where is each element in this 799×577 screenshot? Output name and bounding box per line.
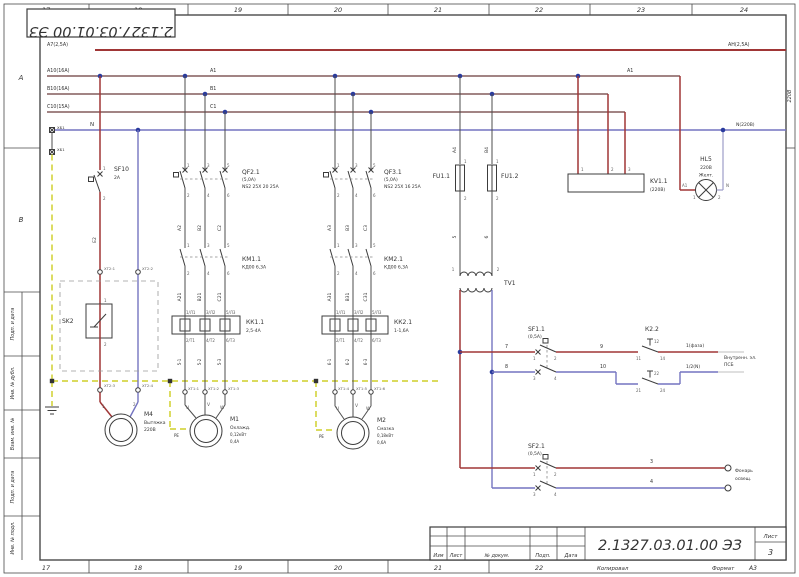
wire-tag: С2 bbox=[217, 225, 223, 231]
pin-label: 2 bbox=[554, 356, 557, 361]
lamp-hl5-ref: HL5 bbox=[700, 156, 712, 163]
pin-label: 3 bbox=[355, 243, 358, 248]
zone-number: 20 bbox=[334, 564, 342, 572]
cable-tag: 5-2 bbox=[197, 358, 202, 365]
breaker-qf21: 1 3 5 2 4 6 QF2.1 (5,0А) NS2 25Х 20 25А bbox=[174, 163, 280, 198]
breaker-qf31-type: NS2 25Х 16 25А bbox=[384, 184, 422, 190]
breaker-qf21-type: NS2 25Х 20 25А bbox=[242, 184, 280, 190]
pin-label: 5 bbox=[373, 163, 376, 168]
breaker-sf10: 1 2 SF10 2А bbox=[89, 166, 130, 201]
terminal-label: ХТ1:1 bbox=[188, 386, 200, 391]
pin-label: 14 bbox=[660, 356, 666, 361]
pin-label: 2/Т1 bbox=[186, 338, 195, 343]
zone-number: 22 bbox=[535, 6, 543, 14]
sheet-number: 3 bbox=[768, 548, 773, 557]
pin-label: 1 bbox=[337, 163, 340, 168]
thermal-relay-kk21-ref: КК2.1 bbox=[394, 319, 412, 326]
pin-label: 1 bbox=[104, 298, 107, 303]
pin-label: 6/Т3 bbox=[372, 338, 381, 343]
pin-label: 2 bbox=[497, 267, 500, 272]
pin-label: W bbox=[220, 405, 225, 411]
pin-label: 1 bbox=[581, 167, 584, 172]
contactor-km11-type: КД00 6,3А bbox=[242, 265, 267, 271]
wire-tag: С21 bbox=[217, 292, 223, 301]
terminal bbox=[333, 390, 337, 394]
breaker-sf11-rating: (0,5А) bbox=[528, 334, 542, 340]
terminal bbox=[203, 390, 207, 394]
terminal bbox=[98, 388, 103, 393]
pin-label: 1 bbox=[452, 267, 455, 272]
pin-label: 1 bbox=[533, 356, 536, 361]
output-note: освещ. bbox=[735, 477, 751, 482]
zone-number: 22 bbox=[535, 564, 543, 572]
pin-label: 24 bbox=[660, 388, 666, 393]
bus-a1-tag-right: А1 bbox=[627, 68, 633, 74]
pin-label: 2 bbox=[104, 342, 107, 347]
pin-label: 1 bbox=[464, 159, 467, 164]
pin-label: 3/Л2 bbox=[206, 310, 216, 315]
connector-pin bbox=[725, 465, 731, 471]
pin-label: 3 bbox=[533, 376, 536, 381]
breaker-qf21-ref: QF2.1 bbox=[242, 169, 260, 176]
top-stamp: 2.1327.03.01.00 ЭЗ bbox=[27, 9, 175, 39]
zone-letter: А bbox=[18, 74, 24, 82]
thermal-relay-kk21: 1/Л1 3/Л2 5/Л3 2/Т1 4/Т2 6/Т3 КК2.1 1-1,… bbox=[322, 310, 412, 343]
breaker-sf21-ref: SF2.1 bbox=[528, 443, 545, 450]
copied-label: Копировал bbox=[597, 566, 629, 572]
terminal-label: ХТ2:3 bbox=[104, 383, 116, 388]
wire-number: 8 bbox=[505, 364, 508, 370]
indicator-lamp-hl5: HL5 220В Желт. А1 N 1 2 bbox=[680, 76, 729, 201]
motor-m2-current: 0,6А bbox=[377, 440, 386, 445]
drawing-frame bbox=[40, 15, 786, 560]
pin-label: 2/Т1 bbox=[336, 338, 345, 343]
breaker-sf10-ref: SF10 bbox=[114, 166, 129, 173]
pin-label: 5/Л3 bbox=[226, 310, 236, 315]
motor-m1-current: 0,4А bbox=[230, 439, 239, 444]
zone-number: 21 bbox=[434, 564, 442, 572]
pin-label: 2 bbox=[496, 196, 499, 201]
entry-terminal-label: ХБ1 bbox=[57, 125, 65, 130]
pin-label: 2 bbox=[554, 472, 557, 477]
wire-tag: А3 bbox=[327, 225, 333, 231]
motor-m1-name: Охлажд. bbox=[230, 425, 250, 431]
pin-label: 4 bbox=[554, 492, 557, 497]
wire-tag: С31 bbox=[363, 292, 369, 301]
thermal-switch-sk2: SK2 1 2 bbox=[62, 298, 112, 347]
bus-n-tag: N bbox=[90, 122, 94, 128]
wire-tag: 5 bbox=[452, 235, 458, 238]
motor-m2-ref: М2 bbox=[377, 417, 386, 424]
pin-label: 2 bbox=[337, 271, 340, 276]
pin-label: W bbox=[366, 406, 371, 412]
pin-label: 1 bbox=[337, 243, 340, 248]
bus-b1-label: В10(16А) bbox=[47, 86, 70, 92]
motor-m2-name: Смазка bbox=[377, 426, 394, 432]
terminal bbox=[98, 270, 103, 275]
fuse-fu12-ref: FU1.2 bbox=[501, 173, 519, 180]
terminal-label: ХТ2:1 bbox=[104, 266, 116, 271]
title-col: Лист bbox=[449, 553, 464, 559]
pin-label: 5 bbox=[227, 243, 230, 248]
bus-c1-label: С10(15А) bbox=[47, 104, 70, 110]
pin-label: 6 bbox=[373, 193, 376, 198]
pin-label: 1 bbox=[187, 163, 190, 168]
side-voltage-label: 220В bbox=[787, 89, 793, 103]
cable-tag: 6-3 bbox=[363, 358, 368, 365]
terminal-label: ХТ1:2 bbox=[208, 386, 220, 391]
bus-b1-tag: В1 bbox=[210, 86, 216, 92]
motor-m4-name: Вытяжка bbox=[144, 420, 166, 426]
kv11-body bbox=[568, 174, 644, 192]
pin-label: 1 bbox=[496, 159, 499, 164]
breaker-sf11-ref: SF1.1 bbox=[528, 326, 545, 333]
pin-label: 2 bbox=[611, 167, 614, 172]
pin-label: 1 bbox=[103, 166, 106, 171]
pin-label: 4 bbox=[355, 271, 358, 276]
kv11-ref: KV1.1 bbox=[650, 178, 668, 185]
bus-a1-tag: А1 bbox=[210, 68, 216, 74]
wire-tag: Е2 bbox=[92, 237, 98, 243]
pin-label: 2 bbox=[337, 193, 340, 198]
pin-label: 1 bbox=[693, 195, 696, 200]
wire-tag: N bbox=[726, 183, 729, 188]
wire-number: 7 bbox=[505, 344, 508, 350]
pin-label: 2 bbox=[464, 196, 467, 201]
pin-label: V bbox=[207, 402, 211, 408]
relay-contact-k22: К2.2 11 12 14 21 22 24 bbox=[636, 326, 666, 393]
pin-label: U bbox=[186, 405, 189, 411]
terminal-label: ХТ1:6 bbox=[374, 386, 386, 391]
contactor-km11: 1 3 5 2 4 6 КМ1.1 КД00 6,3А bbox=[180, 243, 267, 276]
output-note: Внутренн. эл. bbox=[724, 355, 756, 361]
pin-label: 1 bbox=[533, 472, 536, 477]
lamp-hl5-voltage: 220В bbox=[700, 165, 712, 171]
entry-terminals: ХБ1 ХБ1 bbox=[50, 125, 66, 155]
wire-number: 4 bbox=[650, 479, 653, 485]
wire-tag: В21 bbox=[197, 292, 203, 301]
zone-number: 19 bbox=[234, 6, 242, 14]
cable-tag: 6-1 bbox=[327, 358, 332, 365]
relay-k22-ref: К2.2 bbox=[645, 326, 659, 333]
pin-label: 4/Т2 bbox=[206, 338, 215, 343]
pin-label: 3 bbox=[207, 243, 210, 248]
contactor-km21: 1 3 5 2 4 6 КМ2.1 КД00 6,3А bbox=[330, 243, 409, 276]
contactor-km21-ref: КМ2.1 bbox=[384, 256, 403, 263]
zone-number: 24 bbox=[740, 6, 748, 14]
margin-field-label: Инв. № подл. bbox=[10, 521, 16, 554]
margin-field-label: Взам. инв. № bbox=[10, 418, 16, 451]
pin-label: 3 bbox=[533, 492, 536, 497]
terminal bbox=[369, 390, 373, 394]
breaker-qf31: 1 3 5 2 4 6 QF3.1 (5,0А) NS2 25Х 16 25А bbox=[324, 163, 422, 198]
terminal-label: ХТ1:5 bbox=[356, 386, 368, 391]
terminal bbox=[223, 390, 227, 394]
pin-label: 4 bbox=[355, 193, 358, 198]
pin-label: 4 bbox=[207, 193, 210, 198]
pin-label: 5/Л3 bbox=[372, 310, 382, 315]
pin-label: 6 bbox=[373, 271, 376, 276]
bus-n-right-label: N(220В) bbox=[736, 122, 755, 128]
pin-label: 6 bbox=[227, 271, 230, 276]
zone-letter: В bbox=[19, 216, 24, 224]
thermal-relay-kk21-range: 1-1,6А bbox=[394, 328, 410, 334]
transformer-tv1-ref: ТV1 bbox=[503, 280, 516, 287]
margin-field-label: Инв. № дубл. bbox=[10, 367, 16, 400]
pin-label: 1/Л1 bbox=[336, 310, 346, 315]
terminal bbox=[351, 390, 355, 394]
zone-number: 20 bbox=[334, 6, 342, 14]
zone-number: 19 bbox=[234, 564, 242, 572]
title-col: № докум. bbox=[484, 553, 510, 559]
wire-tag: 6 bbox=[484, 235, 490, 238]
wire-number: 10 bbox=[600, 364, 606, 370]
pin-label: 3 bbox=[628, 167, 631, 172]
breaker-sf10-rating: 2А bbox=[114, 175, 121, 181]
pin-label: 21 bbox=[636, 388, 642, 393]
wire-tag: А31 bbox=[327, 292, 333, 301]
zone-number: 18 bbox=[134, 564, 142, 572]
margin-field-label: Подп. и дата bbox=[10, 471, 16, 504]
margin-field-label: Подп. и дата bbox=[10, 308, 16, 341]
motor-m4-voltage: 220В bbox=[144, 427, 156, 433]
pin-label: 11 bbox=[636, 356, 642, 361]
breaker-qf31-ref: QF3.1 bbox=[384, 169, 402, 176]
cable-tag: 5-3 bbox=[217, 358, 222, 365]
fuse-fu11: 1 2 FU1.1 bbox=[433, 159, 467, 201]
terminal-label: ХТ1:3 bbox=[228, 386, 240, 391]
output-note: Фонарь bbox=[735, 468, 753, 474]
fuse-fu11-ref: FU1.1 bbox=[433, 173, 451, 180]
pin-label: 5 bbox=[373, 243, 376, 248]
output-wire-label: 1/2(N) bbox=[686, 364, 700, 370]
contactor-km21-type: КД00 6,3А bbox=[384, 265, 409, 271]
motor-m1-power: 0,12кВт bbox=[230, 432, 247, 437]
phase-monitor-kv11: 1 2 3 KV1.1 (220В) bbox=[568, 74, 668, 193]
bus-a7-right-label: АН(2,5А) bbox=[728, 42, 750, 48]
wire-tag: В4 bbox=[484, 147, 490, 153]
power-buses: А7(2,5А) АН(2,5А) А10(16А) А1 А1 В10(16А… bbox=[47, 42, 786, 130]
title-col: Подп. bbox=[535, 553, 550, 559]
output-note: ПСБ bbox=[724, 362, 734, 368]
pin-label: 3 bbox=[355, 163, 358, 168]
pin-label: 22 bbox=[654, 371, 660, 376]
pe-label: PE bbox=[319, 434, 324, 439]
pin-label: 2 bbox=[187, 271, 190, 276]
pin-label: 6 bbox=[227, 193, 230, 198]
bus-a7-label: А7(2,5А) bbox=[47, 42, 68, 48]
terminal bbox=[136, 388, 141, 393]
wire-tag: А2 bbox=[177, 225, 183, 231]
connector-pin bbox=[725, 485, 731, 491]
lamp-hl5-color: Желт. bbox=[699, 173, 714, 179]
pin-label: 5 bbox=[227, 163, 230, 168]
transformer-tv1: 1 2 ТV1 bbox=[452, 267, 516, 292]
thermal-switch-sk2-ref: SK2 bbox=[62, 318, 74, 325]
pin-label: U bbox=[336, 406, 339, 412]
pin-label: 3 bbox=[207, 163, 210, 168]
motor-m1-ref: М1 bbox=[230, 416, 239, 423]
entry-terminal-label: ХБ1 bbox=[57, 147, 65, 152]
breaker-qf21-rating: (5,0А) bbox=[242, 177, 256, 183]
pin-label: V bbox=[355, 403, 359, 409]
pin-label: 4 bbox=[554, 376, 557, 381]
motor-m2-power: 0,18кВт bbox=[377, 433, 394, 438]
wire-tag: В3 bbox=[345, 225, 351, 231]
wire-tag: В2 bbox=[197, 225, 203, 231]
control-circuit: А4 В4 1 2 FU1.1 1 2 FU1.2 5 6 1 2 ТV1 bbox=[433, 74, 757, 497]
top-stamp-number: 2.1327.03.01.00 ЭЗ bbox=[29, 23, 173, 39]
motor-m4-ref: М4 bbox=[144, 411, 153, 418]
thermal-relay-kk11-ref: КК1.1 bbox=[246, 319, 264, 326]
ground-symbol bbox=[45, 407, 59, 414]
doc-number: 2.1327.03.01.00 ЭЗ bbox=[598, 538, 742, 554]
format-value: А3 bbox=[748, 565, 757, 572]
wire-tag: А21 bbox=[177, 292, 183, 301]
terminal bbox=[183, 390, 187, 394]
pin-label: 1 bbox=[187, 243, 190, 248]
wire-tag: А1 bbox=[682, 183, 688, 188]
wire-tag: С3 bbox=[363, 225, 369, 231]
wire-tag: В31 bbox=[345, 292, 351, 301]
terminal-label: ХТ2:4 bbox=[142, 383, 154, 388]
terminal-label: ХТ1:4 bbox=[338, 386, 350, 391]
pin-label: 4/Т2 bbox=[354, 338, 363, 343]
pe-label: PE bbox=[174, 433, 179, 438]
wire-number: 3 bbox=[650, 459, 653, 465]
zone-number: 21 bbox=[434, 6, 442, 14]
bus-c1-tag: С1 bbox=[210, 104, 216, 110]
bus-a1-label: А10(16А) bbox=[47, 68, 70, 74]
title-col: Изм bbox=[433, 553, 443, 559]
contactor-km11-ref: КМ1.1 bbox=[242, 256, 261, 263]
title-block: Изм Лист № докум. Подп. Дата 2.1327.03.0… bbox=[430, 527, 786, 572]
pin-label: 3/Л2 bbox=[354, 310, 364, 315]
kv11-type: (220В) bbox=[650, 187, 665, 193]
unit-boundary-dashed bbox=[60, 281, 158, 371]
zone-number: 17 bbox=[42, 564, 51, 572]
pin-label: 4 bbox=[207, 271, 210, 276]
format-label: Формат bbox=[712, 566, 735, 572]
cable-tag: 6-2 bbox=[345, 358, 350, 365]
thermal-relay-kk11-range: 2,5-4А bbox=[246, 328, 262, 334]
zone-number: 23 bbox=[637, 6, 645, 14]
pin-label: 12 bbox=[654, 339, 660, 344]
pin-label: 2 bbox=[187, 193, 190, 198]
wire-number: 9 bbox=[600, 344, 603, 350]
wire-tag: А4 bbox=[452, 147, 458, 153]
thermal-relay-kk11: 1/Л1 3/Л2 5/Л3 2/Т1 4/Т2 6/Т3 КК1.1 2,5-… bbox=[172, 310, 264, 343]
pin-label: 1/Л1 bbox=[186, 310, 196, 315]
pin-label: 2 bbox=[103, 196, 106, 201]
breaker-sf21: 1 2 3 4 SF2.1 (0,5А) bbox=[528, 443, 557, 497]
sheet-label: Лист bbox=[763, 534, 779, 540]
breaker-qf31-rating: (5,0А) bbox=[384, 177, 398, 183]
title-col: Дата bbox=[564, 553, 578, 559]
cable-tag: 5-1 bbox=[177, 358, 182, 365]
terminal-label: ХТ2:2 bbox=[142, 266, 154, 271]
pin-label: 2 bbox=[718, 195, 721, 200]
terminal bbox=[136, 270, 141, 275]
output-wire-label: 1(фаза) bbox=[686, 343, 704, 349]
pin-label: 6/Т3 bbox=[226, 338, 235, 343]
breaker-sf21-rating: (0,5А) bbox=[528, 451, 542, 457]
breaker-sf11: 1 2 3 4 SF1.1 (0,5А) bbox=[528, 326, 557, 381]
